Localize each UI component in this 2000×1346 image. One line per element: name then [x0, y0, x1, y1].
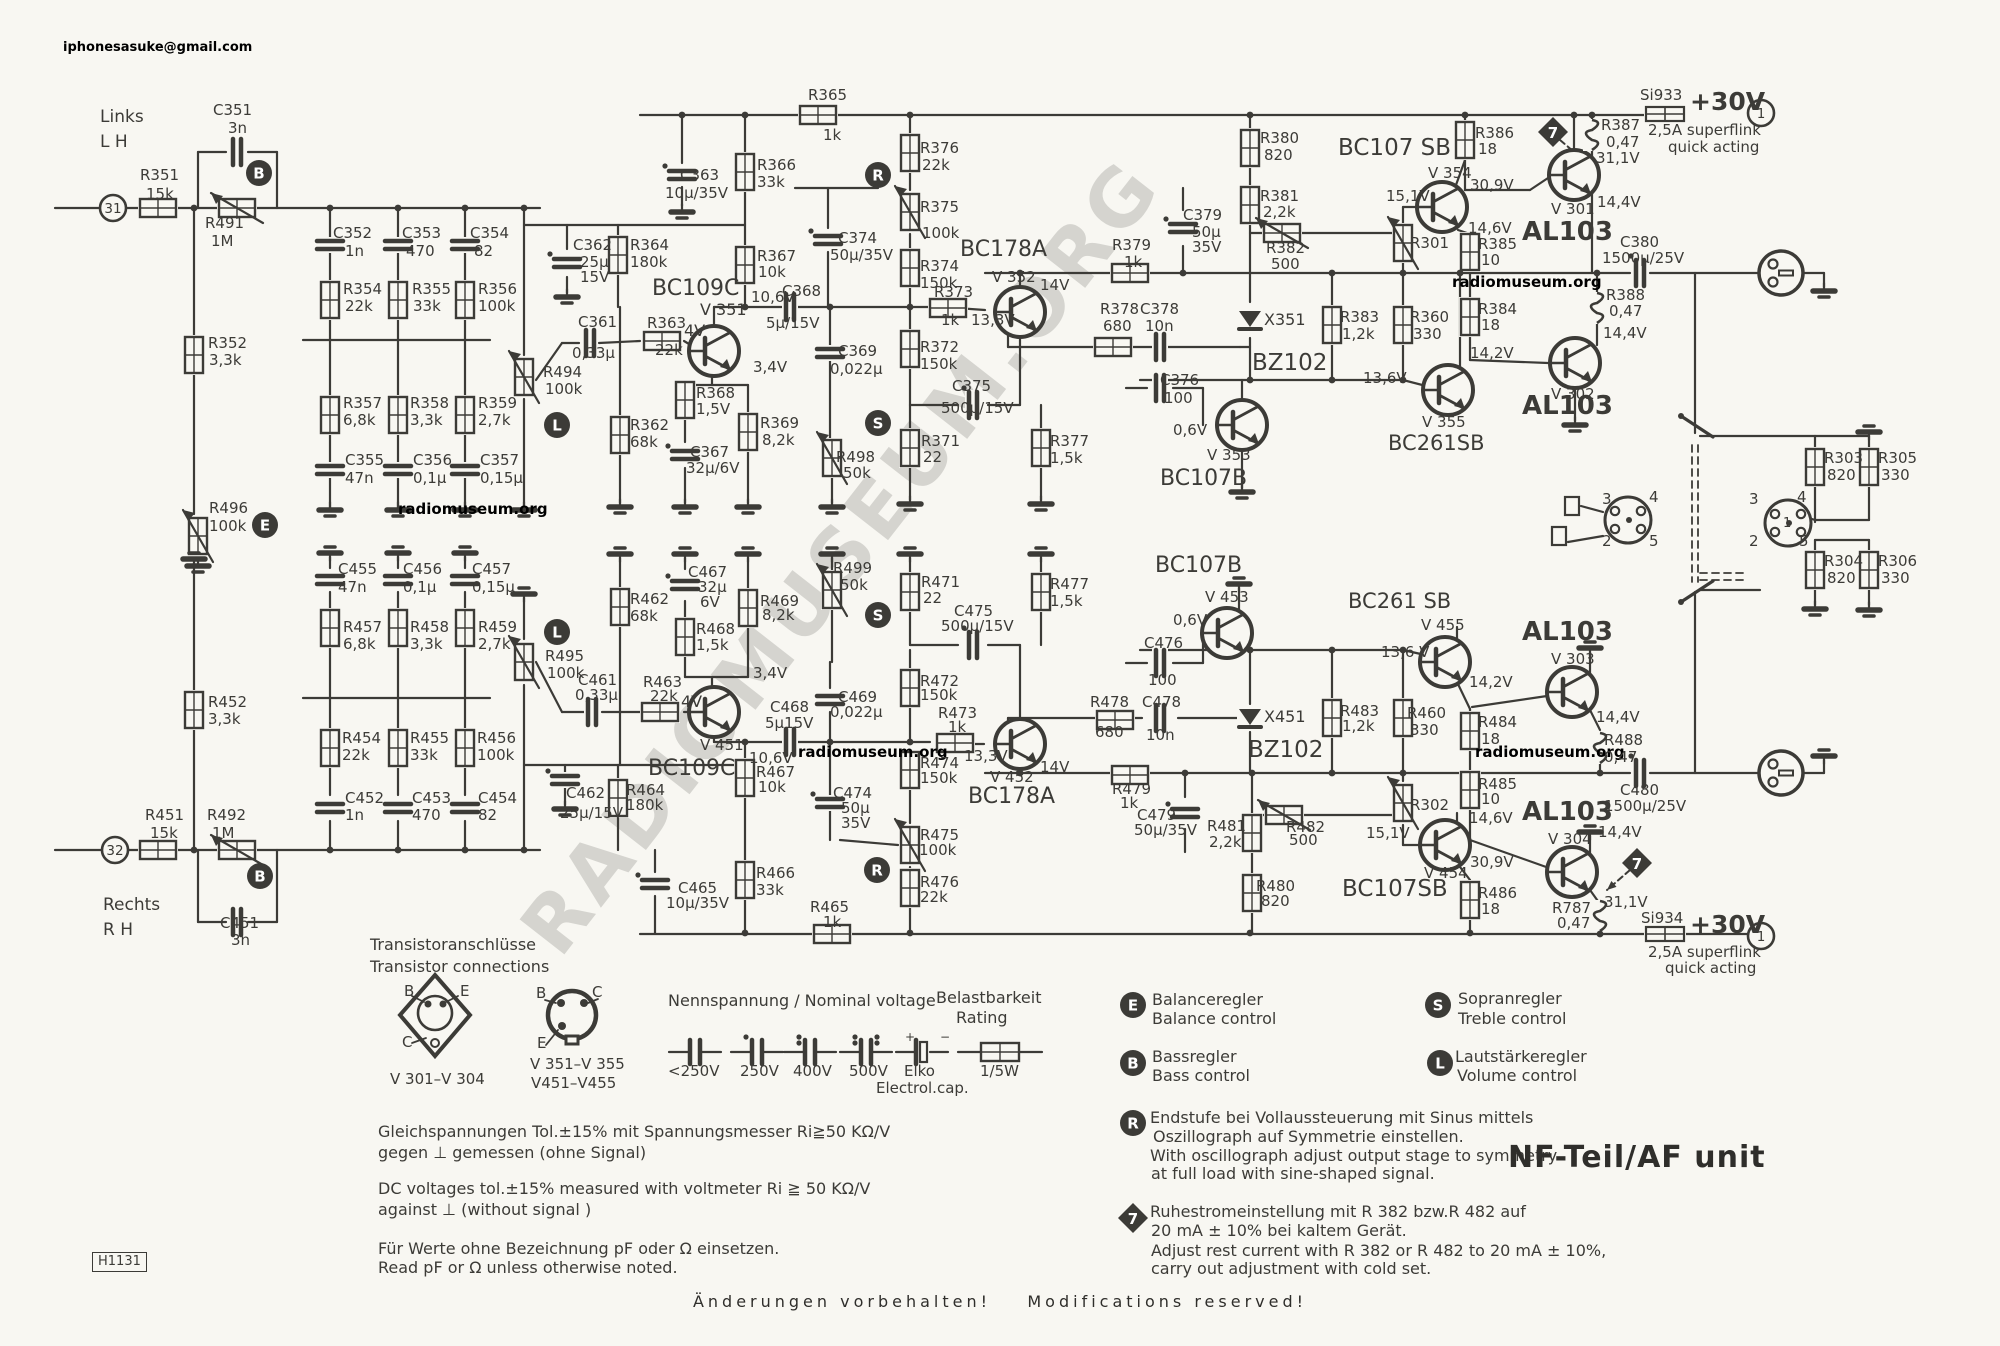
- component-label: 470: [412, 806, 441, 824]
- voltage-dot: [796, 1040, 801, 1045]
- component-label: V 455: [1421, 616, 1465, 634]
- junction-dot: [395, 205, 402, 212]
- component-label: 330: [1881, 466, 1910, 484]
- wire: [1568, 536, 1603, 542]
- component-label: C454: [478, 789, 517, 807]
- package-pin-line: [546, 1030, 558, 1045]
- component-label: 15V: [580, 268, 610, 286]
- component-label: DC voltages tol.±15% measured with voltm…: [378, 1179, 870, 1198]
- control-badge-letter: B: [254, 868, 265, 886]
- control-badge-letter: L: [1435, 1055, 1445, 1073]
- component-label: R355: [412, 280, 451, 298]
- component-label: AL103: [1522, 617, 1613, 647]
- junction-dot: [327, 847, 334, 854]
- component-label: R305: [1878, 449, 1917, 467]
- component-label: 33k: [410, 746, 438, 764]
- component-label: 1,5k: [1050, 592, 1083, 610]
- component-label: R460: [1407, 704, 1446, 722]
- junction-dot: [462, 205, 469, 212]
- component-label: R369: [760, 414, 799, 432]
- component-label: 33k: [756, 881, 784, 899]
- connector-tab: [1565, 497, 1579, 515]
- component-label: 0,47: [1604, 748, 1637, 766]
- component-label: 820: [1827, 466, 1856, 484]
- component-label: C457: [472, 560, 511, 578]
- component-label: 1k: [823, 913, 842, 931]
- component-label: C356: [413, 451, 452, 469]
- component-label: 1k: [1124, 253, 1143, 271]
- component-label: 15k: [146, 185, 174, 203]
- component-label: 2,7k: [478, 411, 511, 429]
- component-label: 6,8k: [343, 635, 376, 653]
- junction-dot: [1462, 112, 1469, 119]
- component-label: 500: [1289, 831, 1318, 849]
- junction-dot: [1400, 770, 1407, 777]
- component-label: C378: [1140, 300, 1179, 318]
- component-label: 20 mA ± 10% bei kaltem Gerät.: [1151, 1221, 1407, 1240]
- component-label: R351: [140, 166, 179, 184]
- component-label: R451: [145, 806, 184, 824]
- adjust-diamond-number: 7: [1632, 855, 1642, 873]
- component-label: C369: [838, 342, 877, 360]
- package-notch: [566, 1036, 578, 1044]
- component-label: 500V: [849, 1062, 889, 1080]
- component-label: 13,3V: [971, 311, 1015, 329]
- component-label: R492: [207, 806, 246, 824]
- component-label: C375: [952, 377, 991, 395]
- component-label: 1k: [948, 718, 967, 736]
- component-label: Bassregler: [1152, 1047, 1237, 1066]
- component-label: 4V: [684, 321, 705, 340]
- component-label: 15,1V: [1386, 187, 1430, 205]
- component-label: AL103: [1522, 391, 1613, 421]
- component-label: 2: [1749, 532, 1759, 550]
- component-label: C452: [345, 789, 384, 807]
- component-label: R366: [757, 156, 796, 174]
- component-label: 1M: [212, 824, 235, 842]
- component-label: R364: [630, 236, 669, 254]
- component-label: C451: [220, 914, 259, 932]
- component-label: R356: [478, 280, 517, 298]
- control-badge-letter: S: [873, 415, 884, 433]
- component-label: 10µ/35V: [666, 894, 730, 912]
- component-label: 50µ/35V: [830, 246, 894, 264]
- component-label: 250V: [740, 1062, 780, 1080]
- component-label: BC107B: [1155, 553, 1242, 578]
- junction-dot: [191, 205, 198, 212]
- component-label: 22: [923, 589, 942, 607]
- component-label: 820: [1261, 892, 1290, 910]
- junction-dot: [521, 205, 528, 212]
- component-label: R459: [478, 618, 517, 636]
- component-label: R383: [1340, 308, 1379, 326]
- control-badge-letter: L: [552, 417, 562, 435]
- component-label: 3: [1749, 490, 1759, 508]
- component-label: C462: [566, 784, 605, 802]
- component-label: 0,022µ: [830, 703, 883, 721]
- component-label: C368: [782, 282, 821, 300]
- package-pin: [425, 1001, 432, 1008]
- component-label: 100k: [209, 517, 247, 535]
- component-label: 3n: [228, 119, 247, 137]
- component-label: BC107 SB: [1338, 135, 1451, 161]
- voltage-dot: [852, 1040, 857, 1045]
- component-label: 50µ/35V: [1134, 821, 1198, 839]
- component-label: R452: [208, 693, 247, 711]
- component-label: 330: [1881, 569, 1910, 587]
- component-label: 4: [1797, 488, 1807, 506]
- control-badge-letter: S: [1433, 997, 1444, 1015]
- component-label: C374: [838, 229, 877, 247]
- junction-dot: [907, 304, 914, 311]
- component-label: 5µ15V: [765, 714, 814, 732]
- component-label: BC178A: [968, 784, 1055, 809]
- component-label: 8,2k: [762, 606, 795, 624]
- junction-dot: [1247, 930, 1254, 937]
- junction-dot: [1467, 930, 1474, 937]
- component-label: 1k: [1120, 794, 1139, 812]
- site-watermark: radiomuseum.org: [398, 500, 548, 518]
- junction-dot: [827, 304, 834, 311]
- component-label: R456: [477, 729, 516, 747]
- component-label: R373: [934, 283, 973, 301]
- component-label: 10: [1481, 251, 1500, 269]
- voltage-dot: [874, 1034, 879, 1039]
- component-label: C478: [1142, 693, 1181, 711]
- din-pin: [1611, 507, 1619, 515]
- package-pin: [580, 999, 588, 1007]
- junction-dot: [395, 847, 402, 854]
- component-label: 14V: [1040, 758, 1070, 776]
- component-label: C362: [573, 236, 612, 254]
- voltage-dot: [743, 1034, 748, 1039]
- junction-dot: [1589, 112, 1596, 119]
- component-label: R306: [1878, 552, 1917, 570]
- component-label: R491: [205, 214, 244, 232]
- component-label: +: [905, 1030, 915, 1044]
- polarity-dot: [1163, 216, 1168, 221]
- component-label: Si933: [1640, 86, 1682, 104]
- component-label: Treble control: [1457, 1009, 1566, 1028]
- component-label: Rating: [956, 1008, 1008, 1027]
- component-label: B: [536, 984, 546, 1002]
- component-label: 22k: [345, 297, 373, 315]
- component-label: R462: [630, 590, 669, 608]
- component-label: 2,7k: [478, 635, 511, 653]
- component-label: 13,6V: [1363, 369, 1407, 387]
- component-label: <250V: [668, 1062, 720, 1080]
- component-label: V 352: [992, 268, 1036, 286]
- component-label: V 453: [1205, 588, 1249, 606]
- component-label: R H: [103, 920, 133, 940]
- component-label: R378: [1100, 300, 1139, 318]
- component-label: V 351: [700, 300, 747, 319]
- component-label: 47n: [345, 469, 374, 487]
- component-label: 820: [1827, 569, 1856, 587]
- din-pin: [1611, 525, 1619, 533]
- component-label: 50k: [840, 576, 868, 594]
- component-label: V 353: [1207, 446, 1251, 464]
- component-label: V 351–V 355: [530, 1055, 625, 1073]
- component-label: 5µ/15V: [766, 314, 820, 332]
- component-label: 4V: [681, 692, 702, 711]
- polarity-dot: [545, 768, 550, 773]
- junction-dot: [1329, 770, 1336, 777]
- component-label: 22: [923, 448, 942, 466]
- din-pin: [1771, 528, 1779, 536]
- component-label: C361: [578, 313, 617, 331]
- component-label: R484: [1478, 713, 1517, 731]
- component-label: 1,5V: [696, 400, 731, 418]
- din-pin: [1771, 510, 1779, 518]
- component-label: 1,2k: [1342, 717, 1375, 735]
- component-label: 100k: [922, 224, 960, 242]
- junction-dot: [1249, 770, 1256, 777]
- component-label: +30V: [1690, 910, 1766, 939]
- component-label: 820: [1264, 146, 1293, 164]
- doc-number-box: H1131: [92, 1252, 147, 1272]
- component-label: 8,2k: [762, 431, 795, 449]
- component-label: V451–V455: [531, 1074, 616, 1092]
- component-label: 0,6V: [1173, 421, 1208, 439]
- component-label: 180k: [630, 253, 668, 271]
- component-label: 100: [1164, 389, 1193, 407]
- component-label: 150k: [920, 769, 958, 787]
- package-pin: [558, 1022, 566, 1030]
- component-label: 82: [474, 242, 493, 260]
- email-watermark: iphonesasuke@gmail.com: [63, 40, 252, 55]
- component-label: R376: [920, 139, 959, 157]
- component-label: 33k: [413, 297, 441, 315]
- component-label: 1500µ/25V: [1604, 797, 1687, 815]
- component-label: C357: [480, 451, 519, 469]
- component-label: R354: [343, 280, 382, 298]
- component-label: L H: [100, 132, 128, 152]
- junction-dot: [462, 847, 469, 854]
- component-label: R365: [808, 86, 847, 104]
- component-label: 3: [1602, 490, 1612, 508]
- component-label: 18: [1481, 730, 1500, 748]
- component-label: C456: [403, 560, 442, 578]
- component-label: 30,9V: [1470, 176, 1514, 194]
- page-title: NF-Teil/AF unit: [1508, 1140, 1766, 1175]
- component-label: R352: [208, 334, 247, 352]
- component-label: With oscillograph adjust output stage to…: [1150, 1146, 1557, 1165]
- component-label: Gleichspannungen Tol.±15% mit Spannungsm…: [378, 1122, 890, 1141]
- junction-dot: [1571, 112, 1578, 119]
- junction-dot: [1247, 112, 1254, 119]
- component-label: 10n: [1146, 726, 1175, 744]
- component-label: R358: [410, 394, 449, 412]
- component-label: 10: [1481, 790, 1500, 808]
- component-label: Adjust rest current with R 382 or R 482 …: [1151, 1241, 1606, 1260]
- component-label: 0,022µ: [830, 360, 883, 378]
- component-label: C379: [1183, 206, 1222, 224]
- component-label: Balanceregler: [1152, 990, 1263, 1009]
- component-label: 3,4V: [753, 358, 788, 376]
- component-label: BZ102: [1252, 350, 1327, 376]
- component-label: E: [537, 1034, 546, 1052]
- component-label: R301: [1410, 234, 1449, 252]
- component-label: 1/5W: [980, 1062, 1019, 1080]
- component-label: carry out adjustment with cold set.: [1151, 1259, 1431, 1278]
- schematic-page: RADIOMUSEUM.ORG313211BBELLSSRREBSLR777ra…: [0, 0, 2000, 1346]
- control-badge-letter: S: [873, 607, 884, 625]
- component-label: C351: [213, 101, 252, 119]
- component-label: X351: [1264, 310, 1306, 329]
- component-label: 22k: [920, 888, 948, 906]
- component-label: 5: [1799, 532, 1809, 550]
- switch-pivot: [1678, 599, 1684, 605]
- component-label: 1,2k: [1342, 325, 1375, 343]
- component-label: 6,8k: [343, 411, 376, 429]
- component-label: 10µ/35V: [665, 184, 729, 202]
- component-label: C363: [680, 166, 719, 184]
- adjust-diamond-number: 7: [1128, 1210, 1138, 1228]
- control-badge-letter: R: [1127, 1115, 1139, 1133]
- component-label: V 355: [1422, 413, 1466, 431]
- component-label: 1500µ/25V: [1602, 249, 1685, 267]
- component-label: 25µ/15V: [560, 804, 624, 822]
- component-label: 330: [1413, 325, 1442, 343]
- component-label: 5: [1649, 532, 1659, 550]
- component-label: 2,2k: [1263, 203, 1296, 221]
- component-label: +30V: [1690, 87, 1766, 116]
- component-label: R458: [410, 618, 449, 636]
- component-label: R477: [1050, 575, 1089, 593]
- din-pin: [1637, 525, 1645, 533]
- control-badge-letter: B: [1127, 1055, 1138, 1073]
- component-label: Endstufe bei Vollaussteuerung mit Sinus …: [1150, 1108, 1533, 1127]
- din-pin-center: [1626, 517, 1632, 523]
- wire: [1530, 178, 1548, 190]
- component-label: R457: [343, 618, 382, 636]
- component-label: 1k: [941, 311, 960, 329]
- component-label: 1n: [345, 242, 364, 260]
- connector-tab: [1552, 527, 1566, 545]
- polarity-dot: [662, 163, 667, 168]
- component-label: R372: [920, 338, 959, 356]
- component-label: Lautstärkeregler: [1455, 1047, 1587, 1066]
- component-label: 14,2V: [1469, 673, 1513, 691]
- component-label: R375: [920, 198, 959, 216]
- component-label: R466: [756, 864, 795, 882]
- site-watermark: radiomuseum.org: [1452, 273, 1602, 291]
- component-label: BZ102: [1248, 737, 1323, 763]
- component-label: BC178A: [960, 237, 1047, 262]
- component-label: Bass control: [1152, 1066, 1250, 1085]
- component-label: Transistor connections: [369, 957, 549, 976]
- component-label: C453: [412, 789, 451, 807]
- component-label: 1: [1783, 516, 1791, 531]
- component-label: 35V: [1192, 238, 1222, 256]
- component-label: 15,1V: [1366, 824, 1410, 842]
- component-label: 470: [406, 242, 435, 260]
- junction-dot: [1180, 270, 1187, 277]
- component-label: 0,15µ: [480, 469, 523, 487]
- component-label: 14V: [1040, 276, 1070, 294]
- component-label: 100: [1148, 671, 1177, 689]
- component-label: gegen ⊥ gemessen (ohne Signal): [378, 1143, 646, 1162]
- component-label: R357: [343, 394, 382, 412]
- component-label: 14,6V: [1469, 809, 1513, 827]
- component-label: 30,9V: [1470, 853, 1514, 871]
- component-label: 150k: [920, 686, 958, 704]
- component-label: R495: [545, 647, 584, 665]
- component-label: quick acting: [1665, 959, 1756, 977]
- component-label: C: [592, 983, 602, 1001]
- component-label: 2,5A superflink: [1648, 121, 1761, 139]
- polarity-dot: [635, 872, 640, 877]
- component-label: 2: [1602, 532, 1612, 550]
- polarity-dot: [810, 791, 815, 796]
- component-label: 100k: [477, 746, 515, 764]
- component-label: V 451: [700, 736, 744, 754]
- component-label: R455: [410, 729, 449, 747]
- junction-dot: [1329, 377, 1336, 384]
- component-label: V 304: [1548, 830, 1592, 848]
- component-label: quick acting: [1668, 138, 1759, 156]
- component-label: BC109C: [652, 276, 739, 301]
- component-label: 0,33µ: [572, 344, 615, 362]
- footer-note: Änderungen vorbehalten! Modifications re…: [0, 1292, 2000, 1311]
- component-label: 3,3k: [410, 411, 443, 429]
- component-label: 31,1V: [1596, 149, 1640, 167]
- component-label: Electrol.cap.: [876, 1079, 969, 1097]
- socket-pin: [1769, 278, 1778, 287]
- voltage-dot: [874, 1040, 879, 1045]
- component-label: 1M: [211, 232, 234, 250]
- component-label: Read pF or Ω unless otherwise noted.: [378, 1258, 678, 1277]
- component-label: C353: [402, 224, 441, 242]
- package-pin: [431, 1039, 439, 1047]
- component-label: at full load with sine-shaped signal.: [1151, 1164, 1435, 1183]
- junction-dot: [1182, 770, 1189, 777]
- component-label: R302: [1410, 796, 1449, 814]
- control-badge-letter: L: [552, 624, 562, 642]
- wire: [1472, 696, 1547, 707]
- component-label: Ruhestromeinstellung mit R 382 bzw.R 482…: [1150, 1202, 1526, 1221]
- component-label: Balance control: [1152, 1009, 1276, 1028]
- component-label: R499: [833, 559, 872, 577]
- component-label: 15k: [150, 824, 178, 842]
- junction-dot: [907, 112, 914, 119]
- polarity-dot: [808, 228, 813, 233]
- component-label: 35V: [841, 814, 871, 832]
- component-label: 3,3k: [208, 710, 241, 728]
- component-label: 14,4V: [1603, 324, 1647, 342]
- component-label: 0,47: [1557, 914, 1590, 932]
- component-label: 100k: [478, 297, 516, 315]
- component-label: 18: [1481, 900, 1500, 918]
- component-label: 3n: [231, 931, 250, 949]
- component-label: BC109C: [648, 756, 735, 781]
- component-label: 13,6 V: [1381, 643, 1430, 661]
- component-label: R360: [1410, 308, 1449, 326]
- component-label: 10k: [758, 263, 786, 281]
- socket-pin: [1769, 260, 1778, 269]
- component-label: R359: [478, 394, 517, 412]
- terminal-number: 31: [104, 201, 121, 217]
- component-label: Sopranregler: [1458, 989, 1562, 1008]
- component-label: 14,4V: [1598, 823, 1642, 841]
- component-label: 400V: [793, 1062, 833, 1080]
- component-label: 100k: [545, 380, 583, 398]
- socket-pin: [1769, 760, 1778, 769]
- component-label: 1k: [823, 126, 842, 144]
- component-label: C455: [338, 560, 377, 578]
- junction-dot: [742, 112, 749, 119]
